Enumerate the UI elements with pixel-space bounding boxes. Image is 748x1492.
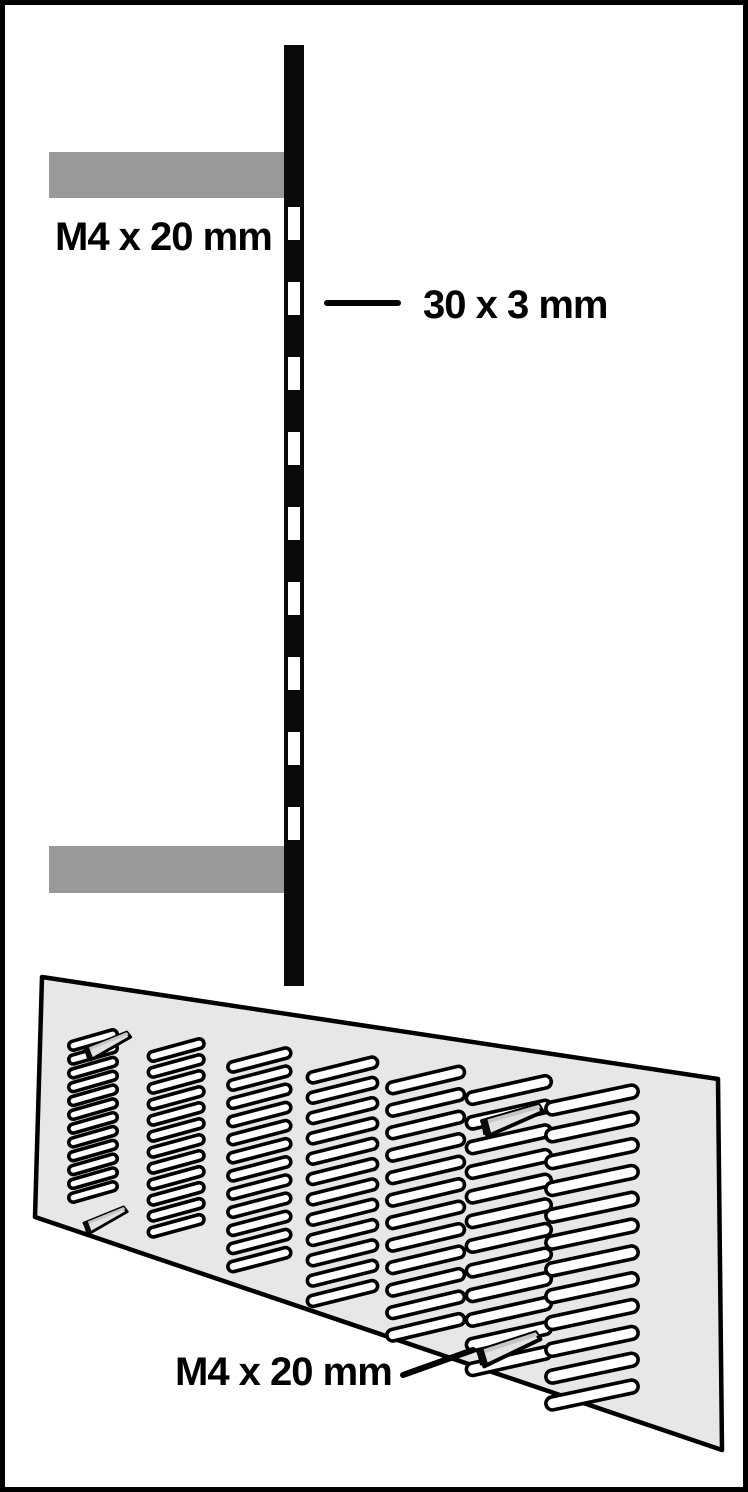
- bar-slot: [288, 657, 300, 690]
- bar-slot: [288, 582, 300, 615]
- bar-slot: [288, 282, 300, 315]
- top-screw-shaft: [49, 152, 285, 198]
- label-bottom-screw: M4 x 20 mm: [175, 1350, 392, 1394]
- diagram-page: M4 x 20 mm 30 x 3 mm M4 x 20 mm: [0, 0, 748, 1492]
- flat-bar-slots: [288, 207, 300, 840]
- bar-slot: [288, 507, 300, 540]
- bar-slot: [288, 357, 300, 390]
- label-top-screw: M4 x 20 mm: [55, 215, 272, 259]
- top-assembly: [49, 45, 304, 986]
- bar-slot: [288, 807, 300, 840]
- bar-slot: [288, 207, 300, 240]
- bar-slot: [288, 432, 300, 465]
- bar-slot: [288, 732, 300, 765]
- bottom-screw-shaft: [49, 846, 285, 893]
- assembly-diagram: M4 x 20 mm 30 x 3 mm M4 x 20 mm: [0, 0, 748, 1492]
- label-flat-bar: 30 x 3 mm: [423, 283, 607, 327]
